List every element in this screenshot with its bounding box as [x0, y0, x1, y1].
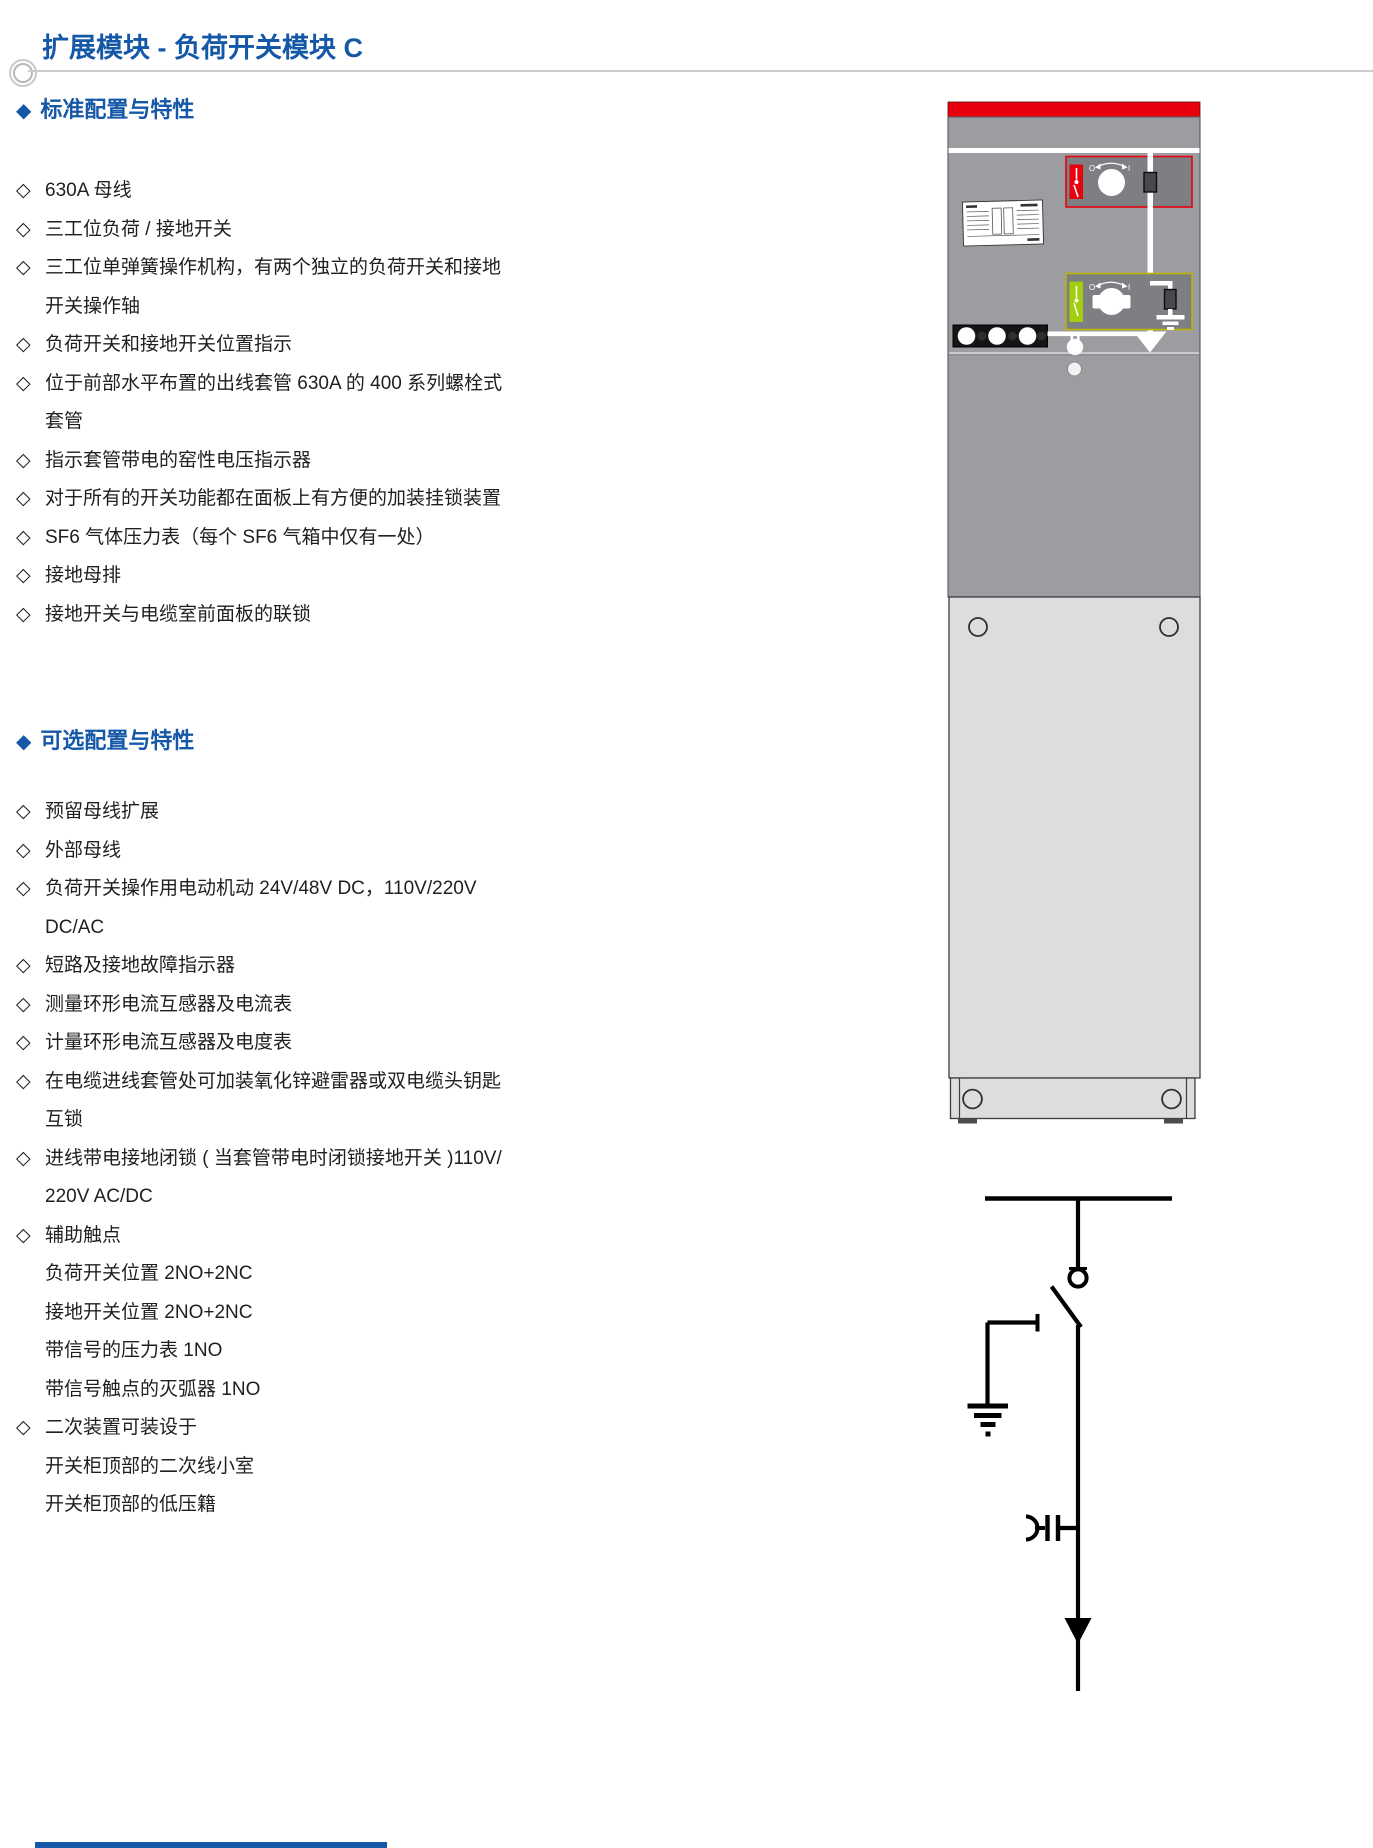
feature-text: 对于所有的开关功能都在面板上有方便的加装挂锁装置	[45, 488, 501, 509]
feature-text: DC/AC	[45, 917, 104, 938]
catalog-page: 扩展模块 - 负荷开关模块 C ◆标准配置与特性 ◇630A 母线◇三工位负荷 …	[0, 0, 1373, 1848]
load-switch-symbol	[1052, 1269, 1088, 1328]
switchgear-cabinet: O I O	[948, 102, 1200, 1124]
on-label: I	[1128, 283, 1130, 292]
feature-text: 开关柜顶部的二次线小室	[45, 1456, 254, 1477]
single-line-diagram	[968, 1198, 1173, 1691]
cabinet-door	[949, 597, 1200, 1078]
feature-line: ◇辅助触点	[16, 1217, 502, 1256]
feature-line: ◇对于所有的开关功能都在面板上有方便的加装挂锁装置	[16, 480, 502, 519]
feature-text: 接地开关与电缆室前面板的联锁	[45, 604, 311, 625]
diamond-bullet-icon: ◇	[16, 365, 31, 404]
feature-line: ◇负荷开关操作用电动机动 24V/48V DC，110V/220V	[16, 870, 502, 909]
diamond-bullet-icon: ◇	[16, 1024, 31, 1063]
feature-line: 220V AC/DC	[16, 1178, 502, 1217]
feature-text: 三工位负荷 / 接地开关	[45, 219, 232, 240]
cable-bushing-circle	[1067, 339, 1083, 355]
busbar-connector	[1144, 173, 1157, 193]
feature-text: 接地开关位置 2NO+2NC	[45, 1302, 252, 1323]
ring-decoration-icon	[13, 63, 33, 83]
page-title: 扩展模块 - 负荷开关模块 C	[42, 26, 363, 65]
off-label: O	[1089, 164, 1095, 173]
diamond-bullet-icon: ◇	[16, 1217, 31, 1256]
optional-feature-list: ◇预留母线扩展◇外部母线◇负荷开关操作用电动机动 24V/48V DC，110V…	[16, 793, 502, 1525]
feature-line: ◇接地开关与电缆室前面板的联锁	[16, 596, 502, 635]
feature-line: 开关柜顶部的低压籍	[16, 1486, 502, 1525]
diamond-bullet-icon: ◇	[16, 793, 31, 832]
diamond-bullet-icon: ◇	[16, 986, 31, 1025]
feature-text: 套管	[45, 411, 83, 432]
earthing-switch-symbol	[968, 1314, 1038, 1437]
cabinet-base	[951, 1078, 1196, 1124]
diamond-bullet-icon: ◇	[16, 870, 31, 909]
section-heading-text: 可选配置与特性	[40, 728, 194, 753]
feature-text: 带信号触点的灭弧器 1NO	[45, 1379, 260, 1400]
feature-text: 预留母线扩展	[45, 801, 159, 822]
feature-line: ◇三工位负荷 / 接地开关	[16, 211, 502, 250]
voltage-indicator-symbol	[1026, 1515, 1076, 1541]
standard-feature-list: ◇630A 母线◇三工位负荷 / 接地开关◇三工位单弹簧操作机构，有两个独立的负…	[16, 172, 502, 634]
diamond-bullet-icon: ◇	[16, 947, 31, 986]
diamond-bullet-icon: ◇	[16, 326, 31, 365]
filled-diamond-icon: ◆	[16, 731, 31, 753]
diamond-bullet-icon: ◇	[16, 557, 31, 596]
feature-line: ◇三工位单弹簧操作机构，有两个独立的负荷开关和接地	[16, 249, 502, 288]
section-heading-optional: ◆可选配置与特性	[16, 723, 194, 759]
feature-line: ◇测量环形电流互感器及电流表	[16, 986, 502, 1025]
diamond-bullet-icon: ◇	[16, 1063, 31, 1102]
diamond-bullet-icon: ◇	[16, 596, 31, 635]
feature-text: 开关操作轴	[45, 296, 140, 317]
diamond-bullet-icon: ◇	[16, 832, 31, 871]
feature-line: ◇630A 母线	[16, 172, 502, 211]
feature-line: ◇二次装置可装设于	[16, 1409, 502, 1448]
feature-line: 负荷开关位置 2NO+2NC	[16, 1255, 502, 1294]
panel-white-line	[949, 148, 1200, 153]
diamond-bullet-icon: ◇	[16, 249, 31, 288]
feature-text: 指示套管带电的窑性电压指示器	[45, 450, 311, 471]
diamond-bullet-icon: ◇	[16, 172, 31, 211]
footer-accent-bar	[35, 1842, 387, 1848]
feature-line: 接地开关位置 2NO+2NC	[16, 1294, 502, 1333]
on-label: I	[1128, 164, 1130, 173]
feature-text: 630A 母线	[45, 180, 132, 201]
feature-line: ◇进线带电接地闭锁 ( 当套管带电时闭锁接地开关 )110V/	[16, 1140, 502, 1179]
feature-line: ◇负荷开关和接地开关位置指示	[16, 326, 502, 365]
feature-text: 二次装置可装设于	[45, 1417, 197, 1438]
feature-text: 带信号的压力表 1NO	[45, 1340, 222, 1361]
header-divider	[28, 70, 1373, 72]
load-switch-actuator: O I	[1066, 157, 1192, 208]
feature-text: 互锁	[45, 1109, 83, 1130]
cable-horizontal-line	[1048, 332, 1148, 337]
feature-text: 三工位单弹簧操作机构，有两个独立的负荷开关和接地	[45, 257, 501, 278]
feature-text: 负荷开关和接地开关位置指示	[45, 334, 292, 355]
off-label: O	[1089, 283, 1095, 292]
feature-text: 短路及接地故障指示器	[45, 955, 235, 976]
panel-knob	[1068, 362, 1082, 376]
feature-line: ◇短路及接地故障指示器	[16, 947, 502, 986]
earth-switch-actuator: O I	[1066, 274, 1192, 331]
feature-line: 套管	[16, 403, 502, 442]
feature-line: ◇在电缆进线套管处可加装氧化锌避雷器或双电缆头钥匙	[16, 1063, 502, 1102]
feature-line: ◇预留母线扩展	[16, 793, 502, 832]
section-heading-standard: ◆标准配置与特性	[16, 92, 194, 128]
feature-text: 测量环形电流互感器及电流表	[45, 994, 292, 1015]
feature-text: 负荷开关操作用电动机动 24V/48V DC，110V/220V	[45, 878, 477, 899]
feature-text: 辅助触点	[45, 1225, 121, 1246]
feature-line: ◇外部母线	[16, 832, 502, 871]
diamond-bullet-icon: ◇	[16, 442, 31, 481]
feature-text: 220V AC/DC	[45, 1186, 153, 1207]
feature-line: ◇指示套管带电的窑性电压指示器	[16, 442, 502, 481]
section-heading-text: 标准配置与特性	[40, 97, 194, 122]
feature-text: 开关柜顶部的低压籍	[45, 1494, 216, 1515]
feature-text: 负荷开关位置 2NO+2NC	[45, 1263, 252, 1284]
diamond-bullet-icon: ◇	[16, 480, 31, 519]
cabinet-red-top-bar	[948, 102, 1200, 117]
diamond-bullet-icon: ◇	[16, 1140, 31, 1179]
feature-text: 进线带电接地闭锁 ( 当套管带电时闭锁接地开关 )110V/	[45, 1148, 502, 1169]
figure: O I O	[930, 95, 1215, 1705]
feature-text: 接地母排	[45, 565, 121, 586]
feature-line: 互锁	[16, 1101, 502, 1140]
feature-line: 带信号触点的灭弧器 1NO	[16, 1371, 502, 1410]
feature-line: 开关操作轴	[16, 288, 502, 327]
filled-diamond-icon: ◆	[16, 100, 31, 122]
feature-line: ◇位于前部水平布置的出线套管 630A 的 400 系列螺栓式	[16, 365, 502, 404]
feature-line: DC/AC	[16, 909, 502, 948]
feature-line: ◇SF6 气体压力表（每个 SF6 气箱中仅有一处）	[16, 519, 502, 558]
feature-text: 外部母线	[45, 840, 121, 861]
feature-text: 位于前部水平布置的出线套管 630A 的 400 系列螺栓式	[45, 373, 502, 394]
feature-text: 在电缆进线套管处可加装氧化锌避雷器或双电缆头钥匙	[45, 1071, 501, 1092]
feature-line: ◇计量环形电流互感器及电度表	[16, 1024, 502, 1063]
rating-nameplate	[962, 200, 1043, 246]
feature-text: SF6 气体压力表（每个 SF6 气箱中仅有一处）	[45, 527, 435, 548]
feature-line: 带信号的压力表 1NO	[16, 1332, 502, 1371]
feature-line: 开关柜顶部的二次线小室	[16, 1448, 502, 1487]
diamond-bullet-icon: ◇	[16, 519, 31, 558]
feature-line: ◇接地母排	[16, 557, 502, 596]
diamond-bullet-icon: ◇	[16, 211, 31, 250]
load-switch-knob	[1098, 169, 1125, 196]
cable-indicator-strip	[953, 325, 1048, 347]
feature-text: 计量环形电流互感器及电度表	[45, 1032, 292, 1053]
earth-switch-knob	[1098, 288, 1125, 315]
diamond-bullet-icon: ◇	[16, 1409, 31, 1448]
